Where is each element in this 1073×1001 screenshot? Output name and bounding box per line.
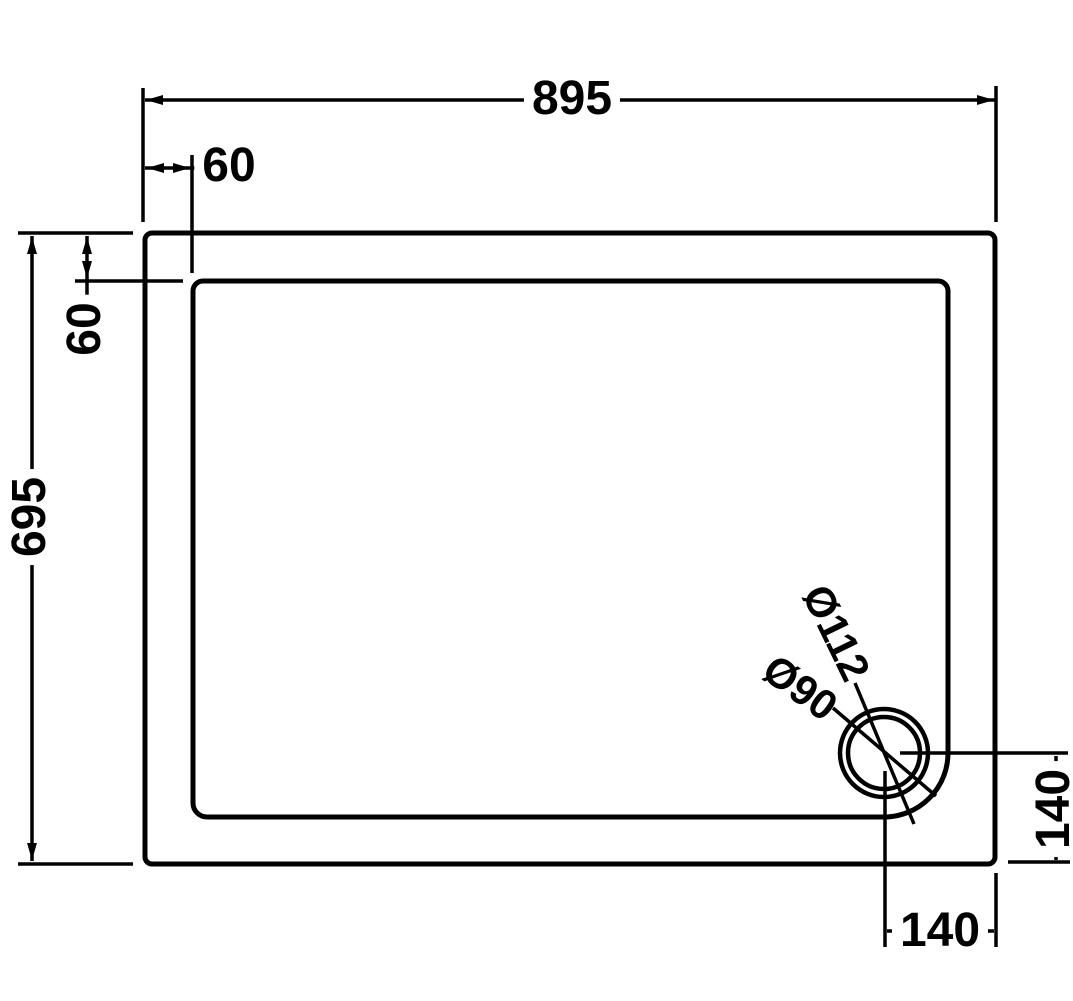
dim-label-side-inset: 60 <box>59 294 111 363</box>
drawing-canvas: 895 60 695 60 140 140 Ø112 Ø90 <box>0 0 1073 1001</box>
dim-label-waste-bottom-offset: 140 <box>892 905 988 957</box>
arrow-left-icon <box>147 163 164 173</box>
tray-outer-outline <box>145 233 995 864</box>
dim-label-top-inset: 60 <box>194 140 263 192</box>
dim-label-overall-width: 895 <box>524 73 620 125</box>
dim-label-waste-right-offset: 140 <box>1028 761 1073 857</box>
drawing-linework <box>0 0 1073 1001</box>
arrow-left-icon <box>146 95 163 105</box>
arrow-up-icon <box>82 237 92 254</box>
arrow-down-icon <box>82 261 92 278</box>
tray-inner-recess-outline <box>193 281 948 817</box>
dim-label-overall-depth: 695 <box>4 469 56 565</box>
arrow-down-icon <box>27 843 37 860</box>
arrow-right-icon <box>173 163 190 173</box>
arrow-up-icon <box>27 237 37 254</box>
dim-side-inset <box>75 236 183 302</box>
arrow-right-icon <box>977 95 994 105</box>
